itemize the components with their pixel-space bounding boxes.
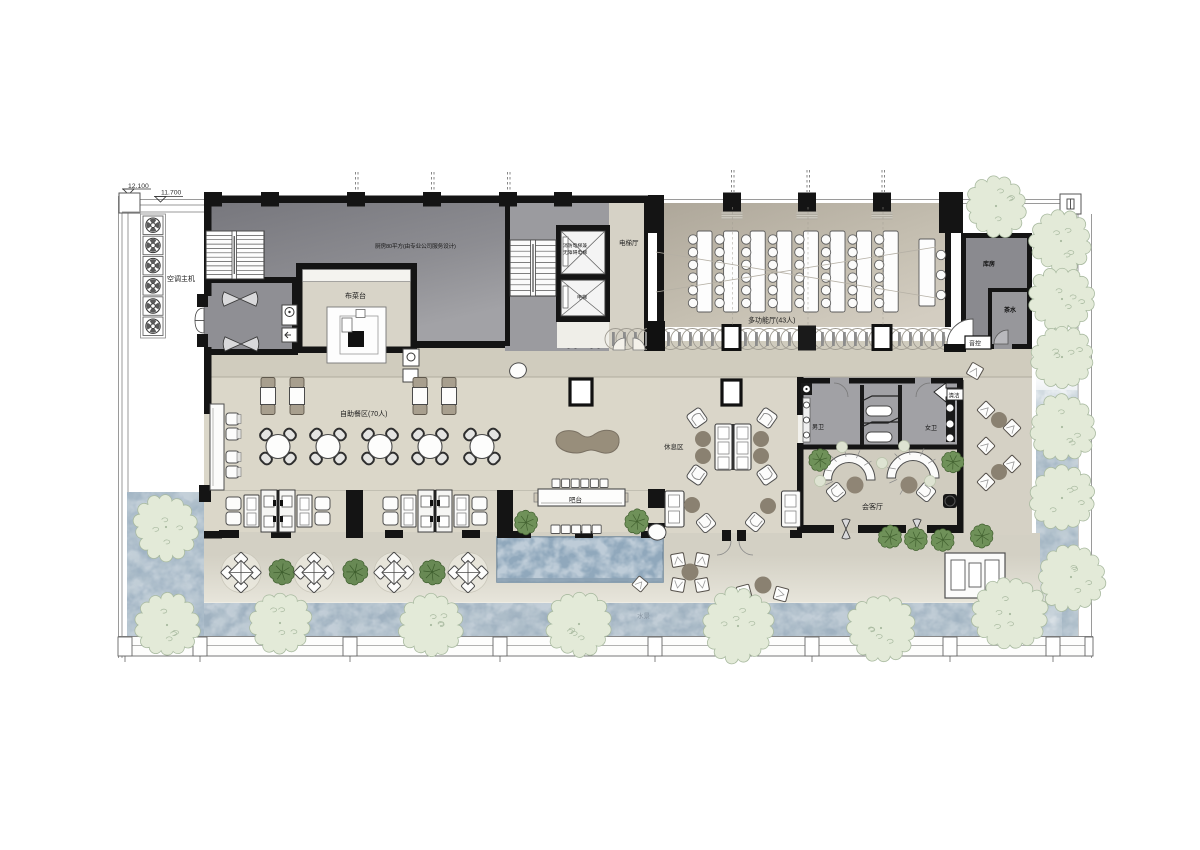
svg-text:自助餐区(70人): 自助餐区(70人)	[340, 409, 387, 418]
svg-text:电梯厅: 电梯厅	[619, 238, 639, 247]
svg-text:吧台: 吧台	[569, 495, 582, 504]
svg-text:多功能厅(43人): 多功能厅(43人)	[748, 316, 795, 325]
svg-text:休息区: 休息区	[664, 442, 684, 451]
svg-text:空调主机: 空调主机	[167, 274, 195, 283]
svg-text:无障碍电梯: 无障碍电梯	[563, 249, 587, 256]
svg-text:清洁: 清洁	[949, 392, 961, 400]
svg-text:音控: 音控	[969, 340, 981, 348]
svg-text:消防电梯兼: 消防电梯兼	[563, 242, 587, 249]
svg-text:男卫: 男卫	[812, 424, 824, 431]
svg-text:11.700: 11.700	[161, 190, 182, 197]
svg-text:女卫: 女卫	[925, 424, 937, 432]
svg-text:茶水: 茶水	[1003, 306, 1017, 314]
svg-text:库房: 库房	[983, 260, 995, 268]
svg-text:电梯: 电梯	[577, 294, 587, 301]
svg-text:布菜台: 布菜台	[345, 291, 366, 300]
svg-text:会客厅: 会客厅	[862, 502, 883, 511]
svg-text:厨房80平方(由专业公司服务设计): 厨房80平方(由专业公司服务设计)	[375, 242, 456, 250]
svg-text:水景: 水景	[637, 611, 651, 620]
